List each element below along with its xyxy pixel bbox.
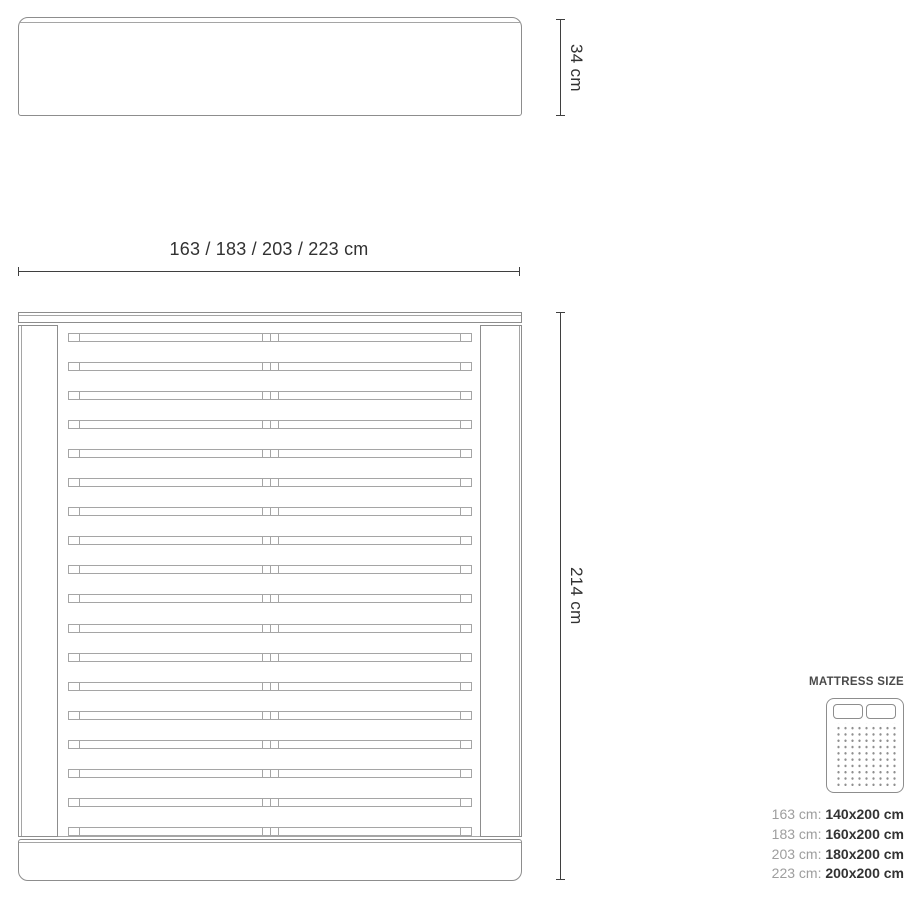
slat-joint-line: [278, 392, 279, 399]
slat-joint-line: [79, 828, 80, 835]
dimension-end-tick: [18, 267, 19, 276]
dimension-end-tick: [556, 19, 565, 20]
slat-joint-line: [278, 828, 279, 835]
slat: [68, 624, 472, 633]
dimension-end-tick: [519, 267, 520, 276]
slat-joint-line: [460, 683, 461, 690]
frame-width-label: 163 / 183 / 203 / 223 cm: [18, 239, 520, 260]
slat-joint-line: [278, 334, 279, 341]
frame-width-value: 203 cm:: [772, 846, 826, 862]
slat-joint-line: [460, 392, 461, 399]
slat: [68, 594, 472, 603]
slat-joint-line: [270, 479, 271, 486]
slat-joint-line: [270, 334, 271, 341]
slat-joint-line: [79, 741, 80, 748]
dimension-end-tick: [556, 879, 565, 880]
slat: [68, 449, 472, 458]
slat-joint-line: [270, 450, 271, 457]
mattress-size-row: 183 cm: 160x200 cm: [772, 825, 904, 845]
headboard-height-label: 34 cm: [566, 19, 586, 116]
slat-joint-line: [262, 654, 263, 661]
slat-joint-line: [278, 508, 279, 515]
slat-joint-line: [262, 537, 263, 544]
slat-joint-line: [262, 566, 263, 573]
dimension-end-tick: [556, 312, 565, 313]
mattress-size-value: 200x200 cm: [825, 865, 904, 881]
slat: [68, 682, 472, 691]
slat-joint-line: [278, 683, 279, 690]
slat-joint-line: [460, 625, 461, 632]
slat-joint-line: [262, 595, 263, 602]
slat-joint-line: [79, 595, 80, 602]
slat-joint-line: [79, 450, 80, 457]
slat-joint-line: [460, 421, 461, 428]
slat-joint-line: [278, 712, 279, 719]
slat-joint-line: [79, 508, 80, 515]
slat-joint-line: [262, 363, 263, 370]
pillow-right-icon: [866, 704, 896, 719]
slat-joint-line: [460, 537, 461, 544]
frame-width-dimension-line: [18, 271, 520, 272]
headboard-front-view: [18, 17, 522, 116]
slat-joint-line: [270, 828, 271, 835]
slat-joint-line: [262, 770, 263, 777]
slat: [68, 827, 472, 836]
slat-joint-line: [262, 712, 263, 719]
slat: [68, 711, 472, 720]
slat-joint-line: [262, 392, 263, 399]
slat: [68, 565, 472, 574]
slat-joint-line: [262, 334, 263, 341]
pillow-left-icon: [833, 704, 863, 719]
slat: [68, 362, 472, 371]
slat-joint-line: [278, 595, 279, 602]
mattress-size-list: 163 cm: 140x200 cm183 cm: 160x200 cm203 …: [772, 805, 904, 884]
slat-joint-line: [262, 683, 263, 690]
slat-joint-line: [79, 712, 80, 719]
slat-joint-line: [270, 595, 271, 602]
slat-joint-line: [278, 566, 279, 573]
slat-joint-line: [262, 508, 263, 515]
slat: [68, 653, 472, 662]
slat-joint-line: [278, 799, 279, 806]
slat-joint-line: [79, 334, 80, 341]
slat-joint-line: [460, 363, 461, 370]
slat-joint-line: [270, 741, 271, 748]
double-mattress-icon: [826, 698, 904, 793]
frame-width-value: 223 cm:: [772, 865, 826, 881]
side-rail-right: [480, 325, 522, 837]
footboard-plan-view: [18, 839, 522, 881]
slat: [68, 333, 472, 342]
slat: [68, 769, 472, 778]
mattress-size-value: 160x200 cm: [825, 826, 904, 842]
frame-length-label: 214 cm: [566, 312, 586, 880]
mattress-size-value: 140x200 cm: [825, 806, 904, 822]
slat-joint-line: [262, 741, 263, 748]
slat-joint-line: [460, 770, 461, 777]
slat-joint-line: [460, 450, 461, 457]
slat-joint-line: [460, 508, 461, 515]
slat-joint-line: [79, 392, 80, 399]
slat-deck-bottom-edge: [58, 836, 480, 837]
slat-joint-line: [460, 334, 461, 341]
slat-joint-line: [278, 654, 279, 661]
slat-joint-line: [460, 741, 461, 748]
mattress-tufting-dots: [834, 723, 897, 786]
slat-joint-line: [270, 712, 271, 719]
slat-joint-line: [270, 508, 271, 515]
slat-joint-line: [79, 537, 80, 544]
slat-joint-line: [79, 799, 80, 806]
frame-length-dimension-line: [560, 312, 561, 880]
slat-joint-line: [79, 654, 80, 661]
slat-joint-line: [262, 479, 263, 486]
slat-joint-line: [270, 625, 271, 632]
slat-joint-line: [79, 770, 80, 777]
slat-joint-line: [278, 537, 279, 544]
slat-joint-line: [278, 741, 279, 748]
slat: [68, 740, 472, 749]
slat-joint-line: [79, 683, 80, 690]
slat-joint-line: [79, 479, 80, 486]
slat-joint-line: [270, 654, 271, 661]
slat-joint-line: [262, 450, 263, 457]
slat-joint-line: [262, 625, 263, 632]
mattress-size-value: 180x200 cm: [825, 846, 904, 862]
slat-joint-line: [278, 770, 279, 777]
slat: [68, 391, 472, 400]
slat-joint-line: [262, 799, 263, 806]
slat-joint-line: [278, 450, 279, 457]
slat-joint-line: [460, 712, 461, 719]
headboard-plan-view: [18, 312, 522, 323]
slat-joint-line: [262, 828, 263, 835]
slat: [68, 798, 472, 807]
slat-area: [68, 333, 472, 837]
slat-joint-line: [460, 479, 461, 486]
headboard-height-dimension-line: [560, 19, 561, 116]
mattress-size-row: 163 cm: 140x200 cm: [772, 805, 904, 825]
slat-joint-line: [278, 479, 279, 486]
side-rail-left: [18, 325, 58, 837]
slat-joint-line: [278, 625, 279, 632]
slat-joint-line: [278, 421, 279, 428]
slat-joint-line: [460, 828, 461, 835]
mattress-size-row: 203 cm: 180x200 cm: [772, 845, 904, 865]
slat-joint-line: [270, 566, 271, 573]
slat: [68, 478, 472, 487]
slat-joint-line: [79, 625, 80, 632]
slat: [68, 420, 472, 429]
mattress-size-title: MATTRESS SIZE: [809, 676, 904, 688]
slat: [68, 507, 472, 516]
slat-joint-line: [278, 363, 279, 370]
slat-joint-line: [262, 421, 263, 428]
slat-joint-line: [460, 566, 461, 573]
slat-joint-line: [460, 654, 461, 661]
slat-joint-line: [460, 799, 461, 806]
slat-joint-line: [79, 421, 80, 428]
slat-joint-line: [270, 770, 271, 777]
slat-joint-line: [79, 566, 80, 573]
bed-frame-dimension-diagram: 34 cm 163 / 183 / 203 / 223 cm 214 cm MA…: [0, 0, 920, 900]
slat-joint-line: [270, 799, 271, 806]
slat: [68, 536, 472, 545]
frame-width-value: 183 cm:: [772, 826, 826, 842]
slat-joint-line: [270, 392, 271, 399]
dimension-end-tick: [556, 115, 565, 116]
slat-joint-line: [460, 595, 461, 602]
slat-joint-line: [270, 683, 271, 690]
slat-joint-line: [270, 421, 271, 428]
mattress-size-row: 223 cm: 200x200 cm: [772, 864, 904, 884]
slat-joint-line: [270, 363, 271, 370]
slat-joint-line: [79, 363, 80, 370]
frame-width-value: 163 cm:: [772, 806, 826, 822]
slat-joint-line: [270, 537, 271, 544]
